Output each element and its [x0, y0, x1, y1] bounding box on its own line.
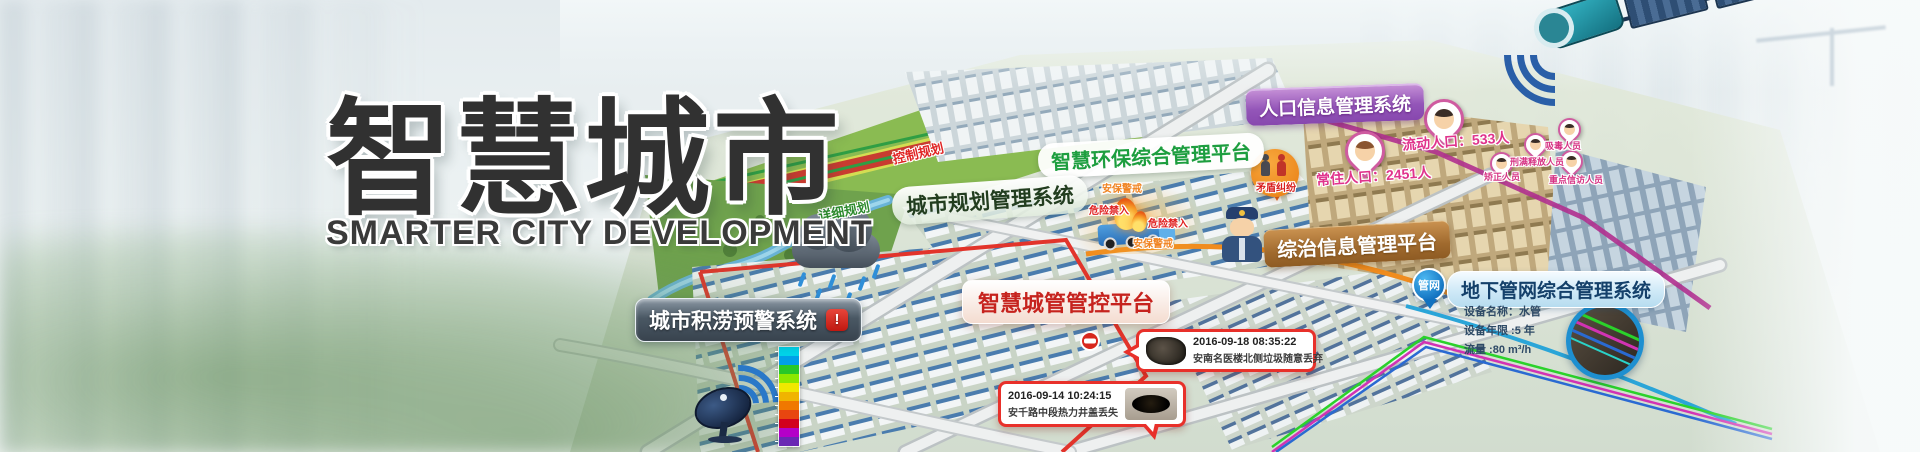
solar-panel: [1623, 0, 1709, 29]
pipeline-device-info: 设备名称：水管 设备年限 :5 年 流量 :80 m³/h: [1464, 303, 1541, 360]
legend-band: [779, 347, 799, 356]
manhole-photo: [1125, 388, 1177, 420]
alarm-icon: !: [826, 309, 848, 331]
solar-panel: [1709, 0, 1795, 9]
incident-callout-manhole: 2016-09-14 10:24:15 安千路中段热力井盖丢失: [998, 381, 1186, 427]
legend-band: [779, 401, 799, 410]
pipeline-flow: 流量 :80 m³/h: [1464, 341, 1541, 360]
legend-band: [779, 365, 799, 374]
rain-legend: [778, 346, 800, 447]
flood-warning-text: 城市积涝预警系统: [649, 305, 817, 335]
no-entry-icon: [1081, 332, 1099, 350]
satellite-icon: [1450, 0, 1880, 136]
label-city-management-platform[interactable]: 智慧城管管控平台: [962, 280, 1170, 324]
pipeline-device-name: 设备名称：水管: [1464, 303, 1541, 322]
legend-band: [779, 419, 799, 428]
pipeline-device-age: 设备年限 :5 年: [1464, 322, 1541, 341]
legend-band: [779, 383, 799, 392]
danger-no-entry-label: 危险禁入: [1148, 215, 1188, 230]
page-subtitle: SMARTER CITY DEVELOPMENT: [326, 214, 873, 253]
label-population-system[interactable]: 人口信息管理系统: [1245, 83, 1424, 126]
police-officer-icon: [1219, 202, 1265, 264]
legend-band: [779, 428, 799, 437]
population-tag: 吸毒人员: [1545, 139, 1581, 152]
incident-text: 2016-09-18 08:35:22 安南名医楼北侧垃圾随意丢弃: [1193, 336, 1323, 365]
page-title: 智慧城市: [326, 58, 842, 240]
legend-band: [779, 437, 799, 446]
person-pin-icon: [1558, 118, 1581, 141]
legend-band: [779, 356, 799, 365]
dispute-label: 矛盾纠纷: [1249, 179, 1303, 194]
incident-time: 2016-09-14 10:24:15: [1008, 390, 1118, 402]
network-pin-icon[interactable]: 管网: [1412, 268, 1446, 302]
smart-city-banner: 矛盾纠纷 控制规划 详细规划 流动人口：533人 常住人口：2451人 安保警戒…: [0, 0, 1920, 452]
security-guard-label: 安保警戒: [1102, 180, 1142, 195]
danger-no-entry-label: 危险禁入: [1089, 202, 1129, 217]
satellite-dish-icon: [678, 334, 778, 446]
incident-desc: 安南名医楼北侧垃圾随意丢弃: [1193, 350, 1323, 365]
incident-time: 2016-09-18 08:35:22: [1193, 336, 1323, 348]
label-flood-warning-system[interactable]: 城市积涝预警系统 !: [635, 298, 862, 342]
person-pin-icon: [1524, 133, 1547, 156]
population-tag: 矫正人员: [1484, 170, 1520, 183]
population-tag: 刑满释放人员: [1510, 155, 1564, 168]
legend-band: [779, 374, 799, 383]
legend-band: [779, 410, 799, 419]
incident-callout-garbage: 2016-09-18 08:35:22 安南名医楼北侧垃圾随意丢弃: [1136, 329, 1316, 372]
legend-band: [779, 392, 799, 401]
incident-desc: 安千路中段热力井盖丢失: [1008, 404, 1118, 419]
population-tag: 重点信访人员: [1549, 173, 1603, 186]
security-guard-label: 安保警戒: [1133, 235, 1173, 250]
construction-crane-silhouette: [1756, 22, 1916, 92]
incident-text: 2016-09-14 10:24:15 安千路中段热力井盖丢失: [1008, 390, 1118, 419]
garbage-photo: [1146, 337, 1186, 365]
underground-pipe-inspection-view: [1566, 302, 1644, 380]
